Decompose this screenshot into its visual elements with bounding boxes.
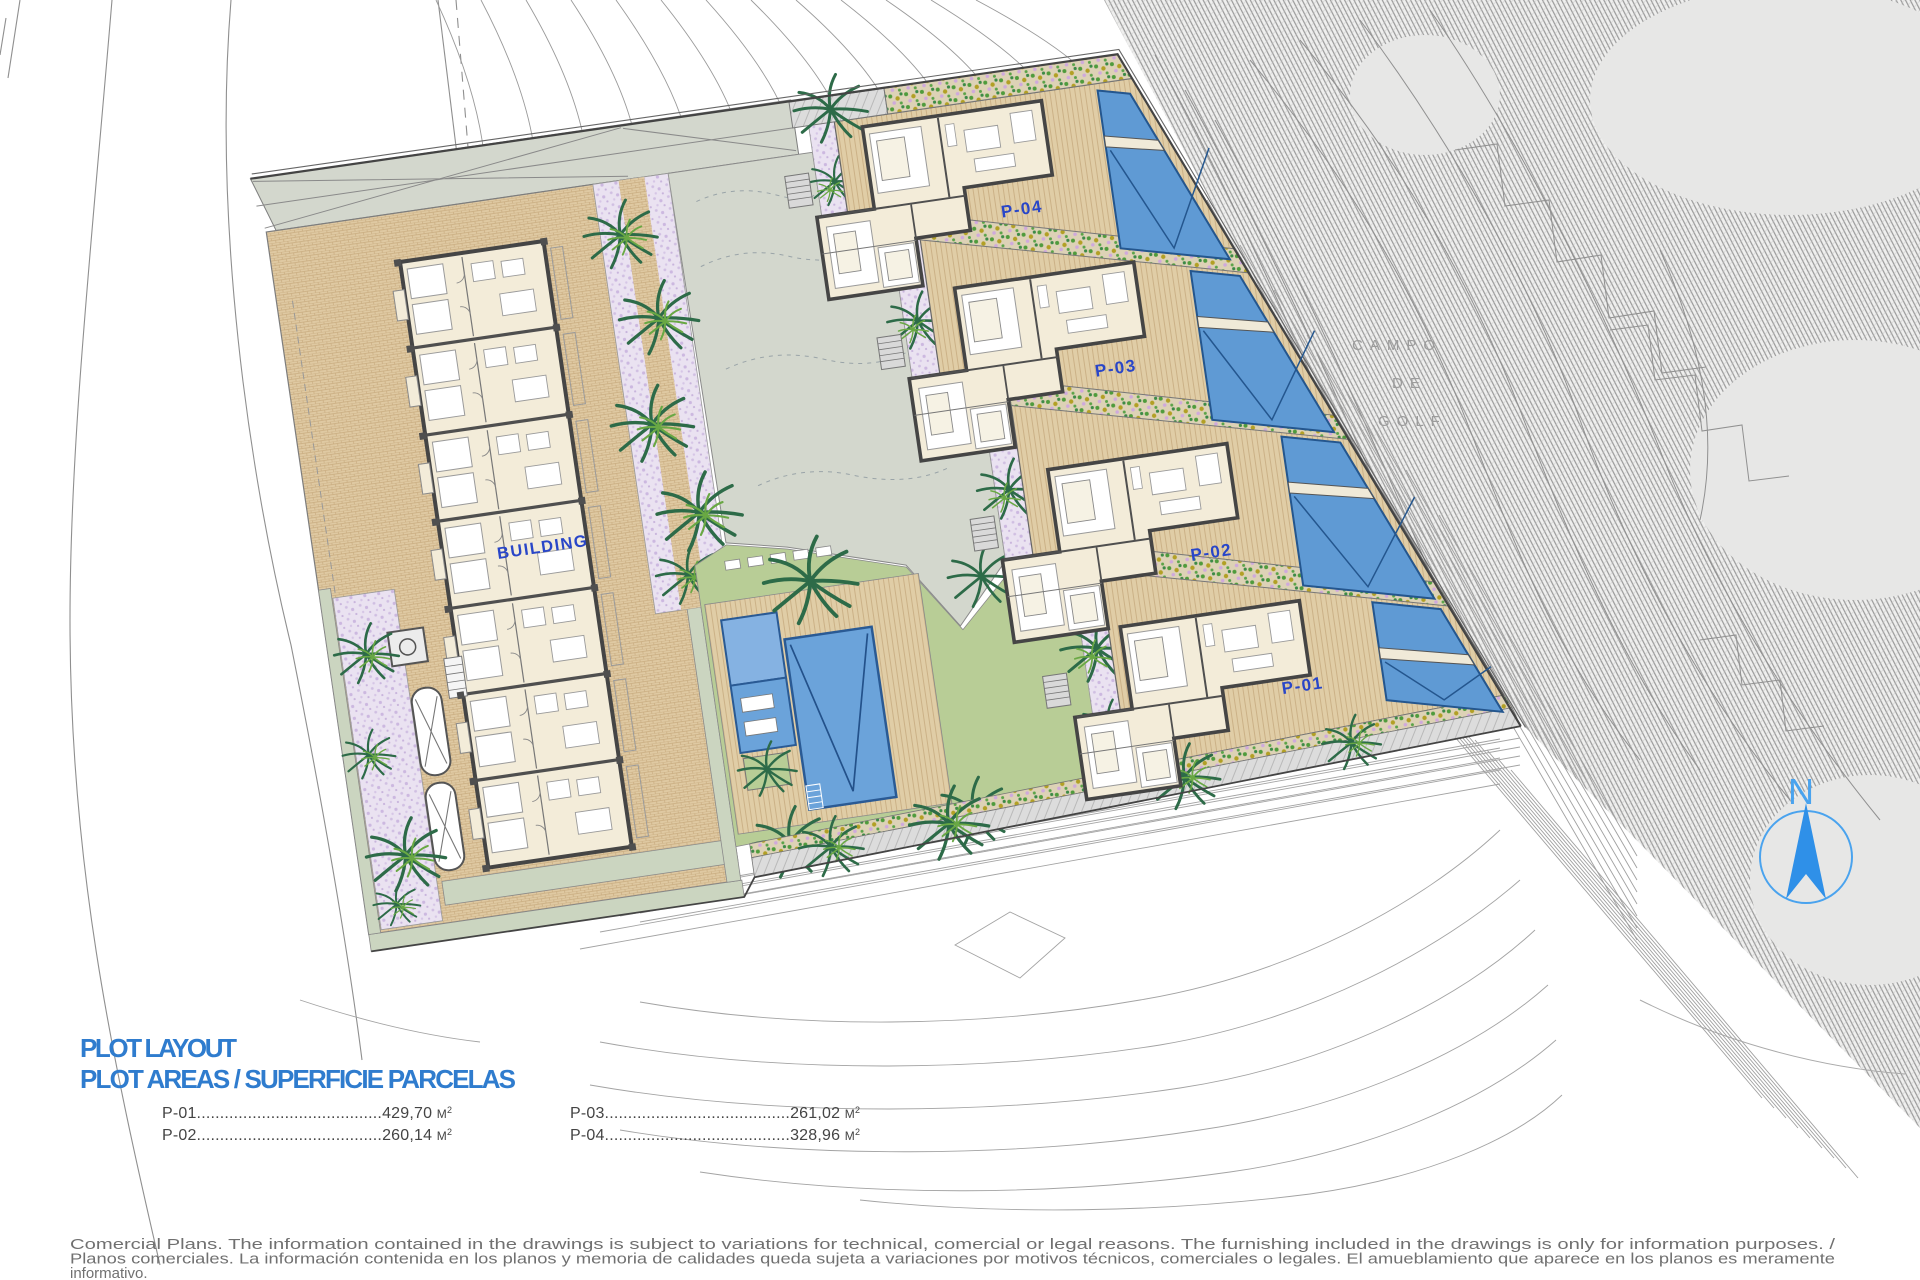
svg-text:Planos comerciales. La informa: Planos comerciales. La información conte…: [70, 1251, 1835, 1268]
svg-text:P-04..........................: P-04....................................…: [570, 1127, 860, 1144]
svg-text:informativo.: informativo.: [70, 1265, 148, 1280]
svg-text:GOLF: GOLF: [1378, 413, 1447, 430]
svg-text:DE: DE: [1392, 375, 1427, 392]
svg-text:PLOT LAYOUT: PLOT LAYOUT: [80, 1033, 238, 1063]
svg-text:CAMPO: CAMPO: [1352, 337, 1442, 354]
svg-text:P-01..........................: P-01....................................…: [162, 1105, 452, 1122]
svg-text:PLOT AREAS / SUPERFICIE PARCEL: PLOT AREAS / SUPERFICIE PARCELAS: [80, 1064, 517, 1094]
svg-text:P-03..........................: P-03....................................…: [570, 1105, 860, 1122]
svg-text:N: N: [1788, 771, 1814, 812]
svg-text:P-02..........................: P-02....................................…: [162, 1127, 452, 1144]
